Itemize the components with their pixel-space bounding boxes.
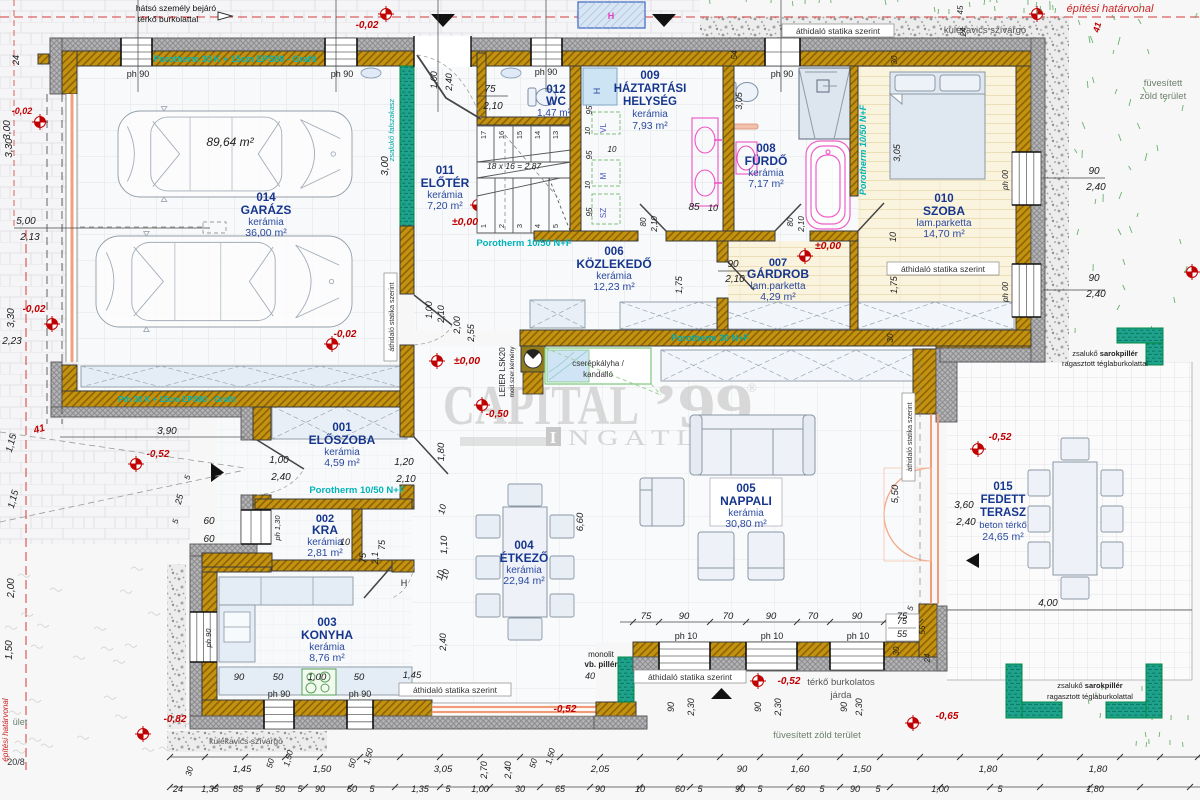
svg-text:10: 10	[608, 145, 617, 154]
svg-text:1,75: 1,75	[674, 275, 684, 294]
svg-text:±0,00: ±0,00	[815, 240, 841, 252]
svg-text:KRA: KRA	[312, 523, 338, 537]
svg-text:015: 015	[993, 481, 1013, 493]
svg-text:75: 75	[641, 611, 652, 622]
svg-text:H: H	[592, 88, 602, 95]
svg-text:áthidaló statika szerint: áthidaló statika szerint	[389, 282, 396, 351]
svg-text:4,59 m²: 4,59 m²	[324, 457, 360, 469]
svg-text:90: 90	[735, 784, 745, 794]
svg-text:áthidaló statika szerint: áthidaló statika szerint	[901, 264, 986, 274]
svg-text:-0,82: -0,82	[164, 714, 187, 725]
svg-text:-0,02: -0,02	[334, 329, 357, 340]
svg-text:90: 90	[1088, 273, 1100, 284]
svg-text:1,00: 1,00	[471, 784, 489, 794]
svg-text:3: 3	[515, 224, 524, 228]
svg-text:16: 16	[497, 131, 506, 139]
svg-text:1,45: 1,45	[403, 670, 422, 681]
svg-text:ph 10: ph 10	[675, 631, 698, 641]
svg-text:3,05: 3,05	[434, 764, 453, 775]
svg-text:90: 90	[666, 702, 676, 712]
svg-text:24,65 m²: 24,65 m²	[982, 531, 1024, 543]
svg-text:14,70 m²: 14,70 m²	[923, 228, 965, 240]
svg-text:10: 10	[888, 232, 898, 242]
svg-text:7,20 m²: 7,20 m²	[427, 200, 463, 212]
svg-text:Porotherm 10/50 N+F: Porotherm 10/50 N+F	[476, 238, 571, 249]
svg-text:kerámia: kerámia	[632, 109, 668, 120]
svg-text:füvesített: füvesített	[1144, 78, 1183, 89]
svg-text:hátsó személy bejáró: hátsó személy bejáró	[136, 3, 217, 13]
svg-text:1,80: 1,80	[436, 442, 447, 461]
svg-text:füvesített zöld terület: füvesített zöld terület	[773, 730, 861, 741]
svg-text:17: 17	[479, 131, 488, 139]
svg-text:építési határvonal: építési határvonal	[1067, 3, 1154, 15]
svg-text:3,05: 3,05	[734, 91, 744, 110]
svg-text:18 x 16 = 2,87: 18 x 16 = 2,87	[487, 161, 541, 171]
svg-text:8,76 m²: 8,76 m²	[309, 652, 345, 664]
svg-text:H: H	[608, 11, 615, 21]
svg-text:95: 95	[585, 105, 594, 114]
svg-text:-0,52: -0,52	[147, 449, 170, 460]
svg-text:7,17 m²: 7,17 m²	[748, 178, 784, 190]
svg-text:2,40: 2,40	[444, 73, 454, 92]
svg-text:5: 5	[551, 224, 560, 228]
svg-text:zsalukő sarokpillér: zsalukő sarokpillér	[1072, 349, 1138, 358]
svg-text:®: ®	[747, 380, 757, 395]
svg-text:30: 30	[890, 55, 899, 64]
svg-text:±0,00: ±0,00	[452, 216, 478, 228]
svg-text:HELYSÉG: HELYSÉG	[623, 95, 677, 108]
svg-text:2,40: 2,40	[270, 472, 291, 483]
svg-text:ph 90: ph 90	[331, 69, 354, 79]
svg-text:2,40: 2,40	[1085, 182, 1106, 193]
svg-text:vb. pillér: vb. pillér	[585, 660, 618, 669]
svg-text:KONYHA: KONYHA	[301, 628, 353, 642]
svg-text:85: 85	[688, 202, 700, 213]
svg-text:1,50: 1,50	[853, 764, 872, 775]
svg-text:cserépkályha /: cserépkályha /	[572, 359, 624, 368]
svg-text:±0,00: ±0,00	[454, 355, 480, 367]
svg-text:1,00: 1,00	[429, 71, 439, 89]
svg-text:90: 90	[852, 611, 863, 622]
svg-text:90: 90	[595, 784, 605, 794]
svg-text:2,40: 2,40	[438, 633, 448, 652]
svg-text:80: 80	[639, 217, 648, 226]
svg-text:75: 75	[377, 539, 387, 550]
svg-text:2,00: 2,00	[452, 316, 462, 335]
svg-text:2,30: 2,30	[686, 698, 696, 717]
svg-text:90: 90	[850, 784, 860, 794]
svg-text:-0,02: -0,02	[23, 304, 46, 315]
svg-text:NAPPALI: NAPPALI	[720, 494, 772, 508]
svg-text:75: 75	[484, 84, 496, 95]
svg-text:80: 80	[786, 217, 795, 226]
svg-text:7,93 m²: 7,93 m²	[632, 120, 668, 132]
svg-text:-0,02: -0,02	[12, 106, 33, 116]
svg-text:áthidaló statika szerint: áthidaló statika szerint	[413, 685, 498, 695]
svg-text:2,70: 2,70	[479, 761, 489, 780]
svg-text:4,00: 4,00	[1038, 598, 1058, 609]
svg-text:2,1: 2,1	[370, 552, 380, 566]
svg-text:FEDETT: FEDETT	[981, 494, 1026, 506]
svg-text:90: 90	[737, 764, 748, 775]
svg-text:5,00: 5,00	[16, 216, 36, 227]
svg-text:1,20: 1,20	[394, 457, 414, 468]
svg-text:3,90: 3,90	[157, 426, 177, 437]
svg-text:ph 10: ph 10	[761, 631, 784, 641]
svg-text:90: 90	[839, 702, 849, 712]
svg-text:3,30: 3,30	[6, 308, 17, 328]
svg-text:22,94 m²: 22,94 m²	[503, 575, 545, 587]
svg-text:Porotherm 30 K + 15cm EPS80 -: Porotherm 30 K + 15cm EPS80 - Grafit	[154, 54, 317, 64]
svg-text:térkő burkolatos: térkő burkolatos	[807, 677, 875, 688]
svg-text:2,30: 2,30	[773, 698, 783, 717]
svg-text:2,05: 2,05	[590, 764, 610, 775]
svg-text:Pth 30 K + 15cm EPS80 - Grafit: Pth 30 K + 15cm EPS80 - Grafit	[118, 395, 235, 404]
svg-text:ph 90: ph 90	[268, 689, 291, 699]
svg-text:ph 00: ph 00	[1001, 169, 1010, 191]
svg-text:M: M	[599, 172, 608, 179]
svg-text:zöld terület: zöld terület	[1140, 91, 1187, 102]
svg-text:85: 85	[233, 784, 244, 794]
svg-text:009: 009	[640, 70, 659, 82]
svg-text:24: 24	[959, 27, 968, 37]
svg-text:2,40: 2,40	[1085, 289, 1106, 300]
svg-text:FÜRDŐ: FÜRDŐ	[745, 153, 788, 168]
svg-text:50: 50	[275, 784, 285, 794]
svg-text:3,05: 3,05	[892, 143, 902, 162]
svg-text:térkő burkolattal: térkő burkolattal	[138, 14, 199, 24]
svg-text:1: 1	[479, 224, 488, 228]
svg-text:kulékavics szívárgó: kulékavics szívárgó	[944, 25, 1026, 36]
svg-text:75: 75	[897, 616, 908, 626]
svg-text:járda: járda	[829, 690, 852, 701]
svg-text:30,80 m²: 30,80 m²	[725, 518, 767, 530]
svg-text:50: 50	[273, 672, 284, 683]
svg-text:3,00: 3,00	[2, 120, 13, 140]
svg-text:90: 90	[727, 259, 739, 270]
svg-text:HÁZTARTÁSI: HÁZTARTÁSI	[614, 82, 687, 95]
svg-text:kandalló: kandalló	[583, 370, 613, 379]
svg-text:áthidaló statika szerint: áthidaló statika szerint	[648, 672, 733, 682]
svg-text:24: 24	[11, 55, 21, 66]
svg-text:1,00: 1,00	[424, 301, 434, 319]
svg-text:-0,02: -0,02	[356, 20, 379, 31]
svg-text:12,23 m²: 12,23 m²	[593, 281, 635, 293]
svg-text:20/8: 20/8	[7, 757, 25, 767]
svg-text:mod.szer.kémény: mod.szer.kémény	[509, 346, 516, 398]
svg-text:75: 75	[358, 552, 368, 563]
svg-text:45: 45	[956, 5, 965, 14]
svg-text:ragasztott téglaburkolattal: ragasztott téglaburkolattal	[1062, 359, 1148, 368]
svg-text:2,23: 2,23	[1, 336, 22, 347]
svg-text:ELŐTÉR: ELŐTÉR	[421, 175, 470, 190]
svg-text:5,50: 5,50	[890, 484, 901, 503]
svg-text:70: 70	[808, 611, 819, 622]
svg-text:2,40: 2,40	[503, 761, 513, 780]
svg-text:15: 15	[515, 131, 524, 139]
svg-text:2,55: 2,55	[466, 323, 476, 343]
svg-text:1,35: 1,35	[411, 784, 430, 794]
svg-text:TERASZ: TERASZ	[980, 507, 1026, 519]
svg-text:ragasztott téglaburkolattal: ragasztott téglaburkolattal	[1047, 692, 1133, 701]
svg-text:2: 2	[497, 224, 506, 228]
svg-text:ph 90: ph 90	[349, 689, 372, 699]
svg-text:kulékavics szívárgó: kulékavics szívárgó	[209, 736, 283, 746]
svg-text:VL: VL	[599, 123, 608, 133]
svg-text:beton térkő: beton térkő	[979, 520, 1027, 531]
svg-text:zsalukő sarokpillér: zsalukő sarokpillér	[1057, 681, 1123, 690]
svg-text:2,10: 2,10	[650, 216, 659, 233]
svg-text:zsalukő falszakasz: zsalukő falszakasz	[387, 98, 396, 162]
svg-text:1,50: 1,50	[4, 640, 15, 660]
svg-text:1,00: 1,00	[308, 672, 327, 683]
svg-text:60: 60	[675, 784, 685, 794]
svg-text:LEIER LSK20: LEIER LSK20	[498, 347, 507, 397]
svg-text:1,80: 1,80	[1089, 764, 1108, 775]
svg-text:2,10: 2,10	[797, 216, 806, 233]
svg-text:H: H	[401, 578, 408, 588]
svg-text:-0,52: -0,52	[554, 704, 577, 715]
svg-text:90: 90	[766, 611, 777, 622]
svg-text:1,80: 1,80	[1086, 784, 1104, 794]
svg-text:6,60: 6,60	[575, 512, 586, 531]
svg-text:13: 13	[551, 131, 560, 139]
svg-text:áthidaló statika szerint: áthidaló statika szerint	[796, 26, 881, 36]
svg-text:54: 54	[730, 50, 739, 59]
svg-text:3,30: 3,30	[4, 138, 15, 158]
svg-text:építési határvonal: építési határvonal	[1, 698, 10, 761]
svg-text:ph 90: ph 90	[204, 628, 213, 649]
svg-text:10: 10	[635, 784, 645, 794]
svg-text:-0,52: -0,52	[989, 432, 1012, 443]
svg-text:55: 55	[918, 625, 927, 634]
svg-text:24: 24	[172, 784, 183, 794]
svg-text:I: I	[550, 428, 557, 447]
svg-text:2,13: 2,13	[19, 232, 40, 243]
svg-text:monolit: monolit	[588, 650, 615, 659]
svg-text:1,45: 1,45	[233, 764, 252, 775]
svg-text:90: 90	[315, 784, 325, 794]
svg-text:ület: ület	[13, 717, 28, 727]
svg-text:ÉTKEZŐ: ÉTKEZŐ	[500, 550, 549, 565]
svg-text:50: 50	[354, 672, 365, 683]
svg-text:95: 95	[585, 207, 594, 216]
svg-text:4: 4	[533, 224, 542, 228]
svg-text:65: 65	[555, 784, 566, 794]
svg-text:1,75: 1,75	[889, 275, 899, 294]
svg-text:2,10: 2,10	[395, 474, 416, 485]
svg-text:90: 90	[234, 672, 245, 683]
svg-text:-0,65: -0,65	[936, 711, 959, 722]
svg-text:90: 90	[679, 611, 690, 622]
svg-text:36,00 m²: 36,00 m²	[245, 227, 287, 239]
svg-text:24: 24	[923, 653, 932, 663]
svg-text:Porotherm 10/50 N+F: Porotherm 10/50 N+F	[309, 485, 404, 496]
svg-text:ph 00: ph 00	[1001, 281, 1010, 303]
svg-text:1,80: 1,80	[979, 764, 998, 775]
svg-text:2,81 m²: 2,81 m²	[307, 547, 343, 559]
svg-text:ph 1,30: ph 1,30	[273, 515, 282, 542]
svg-text:ph 90: ph 90	[771, 69, 794, 79]
svg-text:70: 70	[723, 611, 734, 622]
svg-text:1,00: 1,00	[931, 784, 949, 794]
svg-text:1,10: 1,10	[439, 535, 450, 554]
svg-text:1,47 m²: 1,47 m²	[537, 108, 572, 119]
svg-text:-0,50: -0,50	[486, 409, 509, 420]
svg-text:ELŐSZOBA: ELŐSZOBA	[309, 432, 376, 447]
svg-text:ph 10: ph 10	[847, 631, 870, 641]
svg-text:KÖZLEKEDŐ: KÖZLEKEDŐ	[576, 256, 651, 271]
svg-text:SZ: SZ	[599, 208, 608, 218]
svg-text:-0,52: -0,52	[778, 676, 801, 687]
svg-text:GÁRDROB: GÁRDROB	[747, 266, 809, 281]
svg-text:10: 10	[340, 537, 350, 547]
svg-text:GARÁZS: GARÁZS	[241, 202, 292, 217]
svg-text:55: 55	[897, 629, 908, 639]
svg-text:1,60: 1,60	[791, 764, 810, 775]
svg-text:50: 50	[347, 784, 357, 794]
svg-text:30: 30	[892, 646, 901, 655]
svg-text:4,29 m²: 4,29 m²	[760, 291, 796, 303]
svg-text:30: 30	[515, 784, 525, 794]
svg-text:89,64 m²: 89,64 m²	[206, 135, 254, 149]
svg-text:2,40: 2,40	[955, 517, 976, 528]
svg-text:14: 14	[533, 131, 542, 139]
svg-text:2,10: 2,10	[482, 101, 503, 112]
svg-text:90: 90	[753, 702, 763, 712]
svg-text:2,10: 2,10	[724, 274, 745, 285]
svg-text:1,50: 1,50	[313, 764, 332, 775]
svg-text:SZOBA: SZOBA	[923, 204, 965, 218]
svg-text:3,60: 3,60	[954, 500, 974, 511]
svg-text:60: 60	[203, 534, 215, 545]
svg-text:2,30: 2,30	[854, 698, 864, 717]
svg-text:90: 90	[1088, 166, 1100, 177]
svg-text:60: 60	[203, 516, 215, 527]
svg-text:WC: WC	[546, 94, 566, 108]
svg-text:2,10: 2,10	[436, 305, 446, 324]
svg-text:30: 30	[886, 333, 895, 342]
svg-text:1,35: 1,35	[201, 784, 220, 794]
svg-text:1,00: 1,00	[269, 455, 289, 466]
svg-text:10: 10	[708, 203, 718, 213]
svg-text:Porotherm 10/50 N+F: Porotherm 10/50 N+F	[858, 104, 868, 195]
svg-text:60: 60	[795, 784, 805, 794]
svg-text:Porotherm 30 N+F: Porotherm 30 N+F	[671, 333, 749, 343]
svg-text:10: 10	[585, 181, 592, 189]
svg-text:áthidaló statika szerint: áthidaló statika szerint	[907, 402, 914, 471]
svg-text:40: 40	[585, 671, 595, 681]
svg-text:2,00: 2,00	[6, 578, 17, 599]
svg-text:95: 95	[585, 150, 594, 159]
svg-text:10: 10	[585, 127, 592, 135]
svg-text:3,00: 3,00	[380, 156, 391, 176]
